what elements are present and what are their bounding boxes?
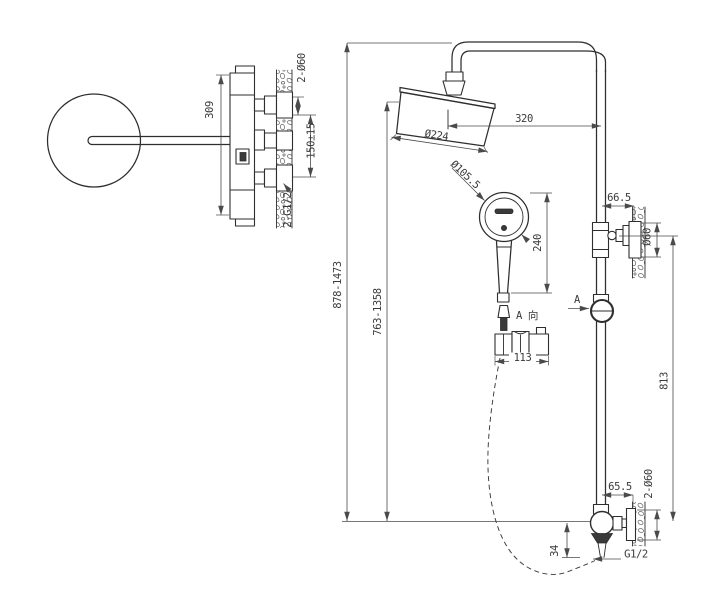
upper-wall-bracket — [593, 222, 642, 259]
side-view: 309 2-Ø60 150±15 2-G1/2 — [48, 53, 318, 228]
shower-head-side-circle — [48, 94, 141, 187]
dim-320-label: 320 — [515, 113, 533, 125]
dim-2-d60-side-label: 2-Ø60 — [296, 53, 308, 83]
dim-d224: Ø224 — [391, 128, 488, 153]
wall-inlet-top — [255, 92, 293, 118]
shower-arm — [88, 137, 233, 145]
dim-d105-5: Ø105.5 — [448, 158, 528, 241]
dim-240-label: 240 — [532, 234, 544, 252]
dim-2-d60-lower-label: 2-Ø60 — [643, 469, 655, 499]
dim-113-label: 113 — [514, 352, 532, 364]
riser-ball-joint — [591, 295, 613, 323]
dim-2-g12-label: 2-G1/2 — [282, 192, 294, 228]
dim-65-5: 65.5 — [602, 481, 633, 507]
dim-66-5: 66.5 — [602, 192, 634, 220]
dim-150: 150±15 — [293, 115, 318, 177]
dim-66-5-label: 66.5 — [607, 192, 631, 204]
dim-878-1473-label: 878-1473 — [332, 261, 344, 308]
dim-813-label: 813 — [659, 372, 671, 390]
head-connector — [443, 72, 465, 95]
wall-joint-middle — [255, 130, 293, 150]
label-g12-text: G1/2 — [624, 549, 648, 561]
front-view: Ø224 320 878-1473 763-1358 — [332, 42, 678, 574]
section-arrow-a-label: A — [574, 294, 581, 306]
view-a-label: A 向 — [516, 309, 538, 322]
dim-240: 240 — [511, 193, 552, 293]
dim-2-d60-side: 2-Ø60 — [293, 53, 316, 115]
dim-878-1473: 878-1473 — [332, 43, 452, 521]
label-g12: G1/2 — [593, 549, 648, 561]
dim-763-1358-label: 763-1358 — [372, 288, 384, 335]
technical-drawing-page: 309 2-Ø60 150±15 2-G1/2 — [0, 0, 720, 600]
dim-65-5-label: 65.5 — [608, 481, 632, 493]
dim-34-label: 34 — [549, 545, 561, 557]
dim-320: 320 — [448, 113, 601, 126]
dim-150-label: 150±15 — [306, 123, 318, 159]
dim-34: 34 — [549, 523, 580, 558]
dim-d224-label: Ø224 — [424, 128, 449, 143]
shower-hose — [488, 358, 595, 574]
section-arrow-a: A — [568, 294, 589, 309]
valve-body-side — [230, 66, 255, 226]
dim-d60-upper-label: Ø60 — [642, 228, 654, 246]
riser-pipe — [452, 42, 606, 505]
dim-763-1358: 763-1358 — [372, 102, 399, 521]
shower-system-technical-drawing: 309 2-Ø60 150±15 2-G1/2 — [0, 0, 720, 600]
dim-309-label: 309 — [204, 101, 216, 119]
dim-d105-5-label: Ø105.5 — [448, 158, 482, 191]
